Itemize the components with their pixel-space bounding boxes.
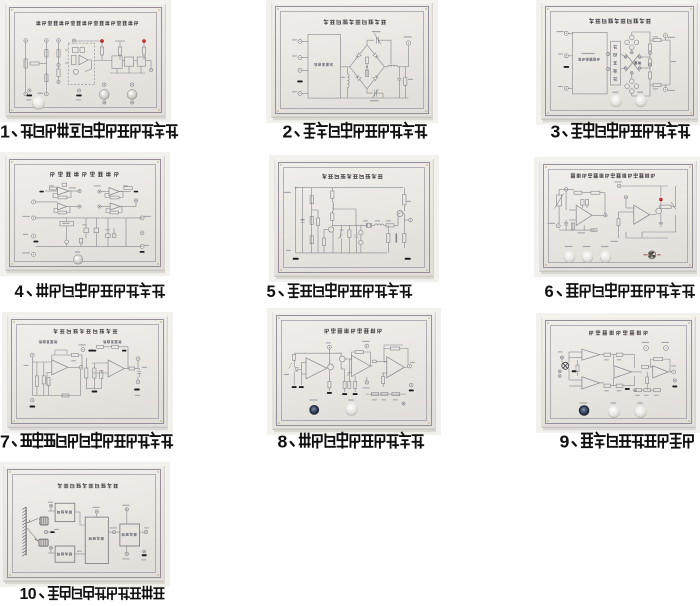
svg-text:2: 2 xyxy=(283,122,293,142)
svg-text:1: 1 xyxy=(0,122,10,142)
svg-text:8: 8 xyxy=(278,432,288,452)
svg-text:4: 4 xyxy=(15,283,25,301)
svg-text:7: 7 xyxy=(0,432,10,452)
svg-text:9: 9 xyxy=(560,432,570,452)
svg-text:5: 5 xyxy=(267,283,276,301)
svg-text:6: 6 xyxy=(545,283,554,301)
svg-text:3: 3 xyxy=(551,122,561,142)
svg-text:0: 0 xyxy=(28,586,37,601)
